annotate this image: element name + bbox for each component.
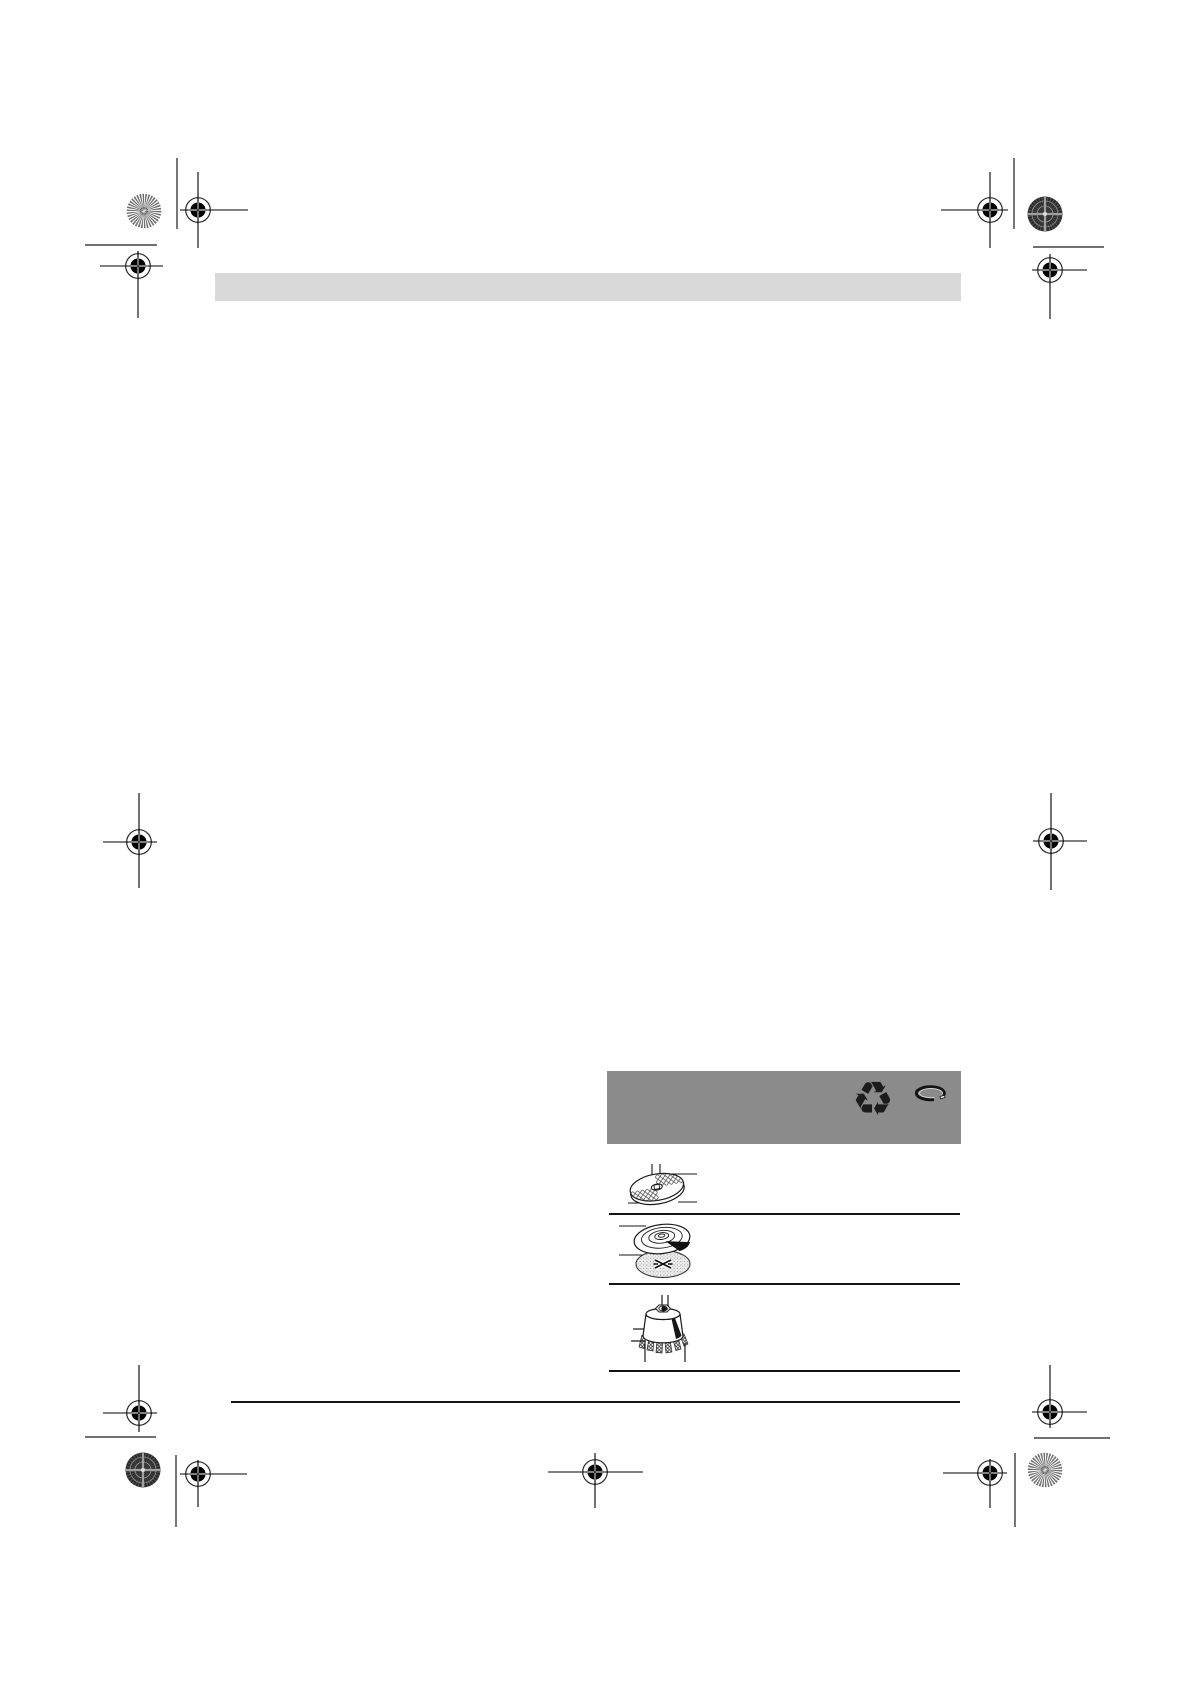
table-rule (609, 1283, 960, 1285)
spindle-nut (656, 1305, 671, 1312)
manual-page: ♻ (0, 0, 1190, 1684)
wire-cup-brush-illustration (615, 1292, 715, 1366)
color-patch-light-bottom-right (1036, 1461, 1054, 1479)
registration-mark-middle-left (103, 793, 157, 888)
recycling-arrows-icon: ♻ (841, 1072, 905, 1128)
registration-mark-top-right-b (1032, 254, 1087, 319)
cup-body (643, 1305, 683, 1343)
registration-mark-bottom-right-b (943, 1459, 1007, 1508)
registration-mark-bottom-right-a (1032, 1365, 1087, 1428)
table-rule (609, 1213, 960, 1215)
section-header-text (215, 273, 961, 301)
registration-mark-bottom-left-a (103, 1365, 157, 1432)
sanding-sheet (636, 1251, 690, 1278)
grinding-disc-illustration (600, 1158, 710, 1214)
section-header-bar (215, 273, 961, 301)
registration-mark-top-right-a (941, 172, 1008, 248)
table-rule (609, 1370, 960, 1372)
color-patch-light-top-left (135, 202, 153, 220)
registration-mark-top-left-b (100, 251, 163, 318)
color-patch-dark-bottom-left (126, 1453, 161, 1488)
trim-marks (85, 158, 1110, 1527)
registration-mark-top-left-a (180, 172, 248, 248)
grinding-disc (628, 1170, 686, 1209)
page-bottom-rule (231, 1401, 960, 1403)
open-ring-icon (911, 1083, 949, 1105)
printer-marks-layer (0, 0, 1190, 1684)
backing-pad-illustration (605, 1217, 715, 1283)
registration-mark-bottom-left-b (180, 1460, 247, 1507)
disposal-panel: ♻ (607, 1071, 961, 1144)
registration-mark-middle-right (1033, 793, 1087, 890)
registration-mark-bottom-center (548, 1453, 643, 1508)
color-patch-dark-top-right (1028, 197, 1063, 232)
